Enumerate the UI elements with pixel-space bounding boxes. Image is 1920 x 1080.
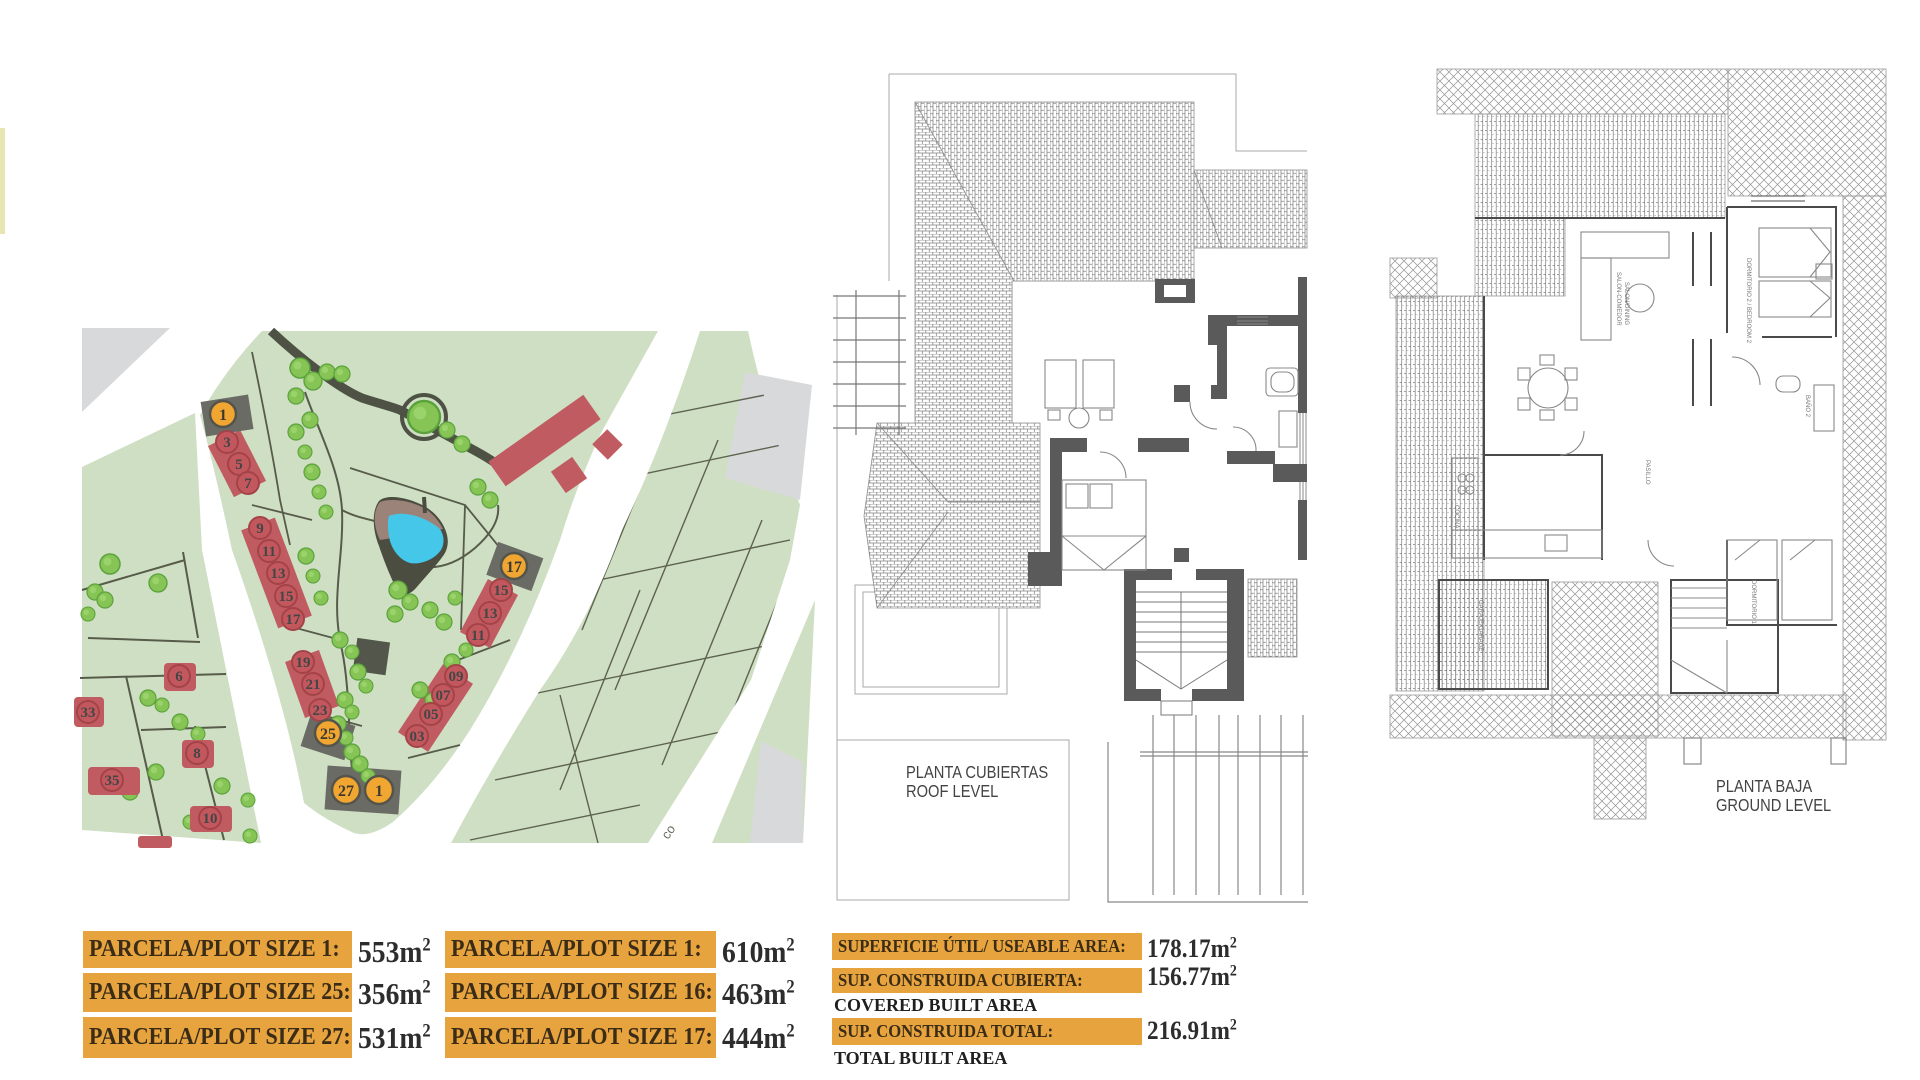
svg-text:13: 13 [271,566,286,582]
svg-text:1: 1 [375,783,383,800]
svg-text:17: 17 [286,612,302,628]
svg-text:15: 15 [279,589,294,605]
svg-text:PASILLO: PASILLO [1644,460,1650,485]
svg-text:27: 27 [338,783,354,800]
svg-text:SALON-COMEDOR: SALON-COMEDOR [1615,272,1621,326]
svg-text:05: 05 [424,707,439,723]
svg-text:11: 11 [262,544,276,560]
svg-text:21: 21 [306,677,321,693]
svg-text:co: co [658,822,678,842]
svg-text:15: 15 [494,583,509,599]
svg-text:03: 03 [410,729,425,745]
svg-text:BAÑO 2: BAÑO 2 [1804,395,1811,418]
svg-text:09: 09 [449,669,464,685]
svg-text:19: 19 [296,655,311,671]
svg-text:17: 17 [506,559,522,576]
svg-text:23: 23 [313,703,328,719]
svg-text:33: 33 [81,705,96,721]
svg-text:1: 1 [219,407,227,424]
svg-text:3: 3 [223,435,231,451]
svg-text:11: 11 [471,628,485,644]
svg-text:35: 35 [105,773,120,789]
svg-text:9: 9 [256,521,264,537]
svg-text:13: 13 [483,606,498,622]
svg-text:8: 8 [193,746,201,762]
svg-text:07: 07 [436,688,452,704]
svg-text:5: 5 [235,457,243,473]
svg-text:6: 6 [175,669,183,685]
svg-text:COCINA: COCINA [1453,505,1459,528]
svg-text:25: 25 [320,726,336,743]
svg-text:10: 10 [203,811,218,827]
svg-text:DORMITORIO 2 / BEDROOM 2: DORMITORIO 2 / BEDROOM 2 [1745,258,1751,344]
svg-text:GARAJE/GARAGE: GARAJE/GARAGE [1477,600,1483,651]
svg-text:DORMITORIO 1: DORMITORIO 1 [1750,580,1756,625]
svg-text:SALON/DINING: SALON/DINING [1623,282,1629,325]
svg-text:7: 7 [244,476,252,492]
